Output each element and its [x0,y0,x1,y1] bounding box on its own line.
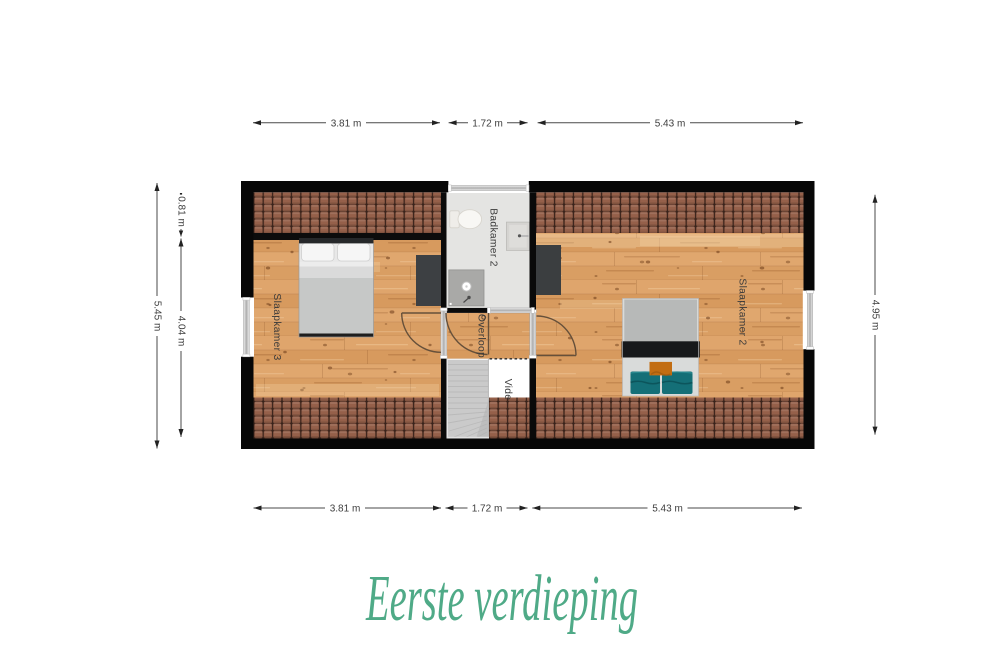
svg-text:4.95 m: 4.95 m [869,300,880,331]
svg-text:Badkamer 2: Badkamer 2 [487,208,498,267]
svg-text:3.81 m: 3.81 m [330,504,361,515]
svg-text:4.04 m: 4.04 m [175,316,186,347]
svg-text:Slaapkamer 2: Slaapkamer 2 [736,278,747,345]
svg-text:3.81 m: 3.81 m [331,119,362,130]
svg-text:1.72 m: 1.72 m [472,504,503,515]
svg-text:5.43 m: 5.43 m [652,504,683,515]
svg-text:5.43 m: 5.43 m [655,119,686,130]
svg-text:5.45 m: 5.45 m [151,301,162,332]
svg-text:Slaapkamer 3: Slaapkamer 3 [271,293,282,360]
svg-text:1.72 m: 1.72 m [472,119,503,130]
svg-text:Overloop: Overloop [475,314,486,358]
svg-text:0.81 m: 0.81 m [175,196,186,227]
svg-text:Vide: Vide [502,379,513,401]
svg-text:Eerste verdieping: Eerste verdieping [365,562,638,635]
